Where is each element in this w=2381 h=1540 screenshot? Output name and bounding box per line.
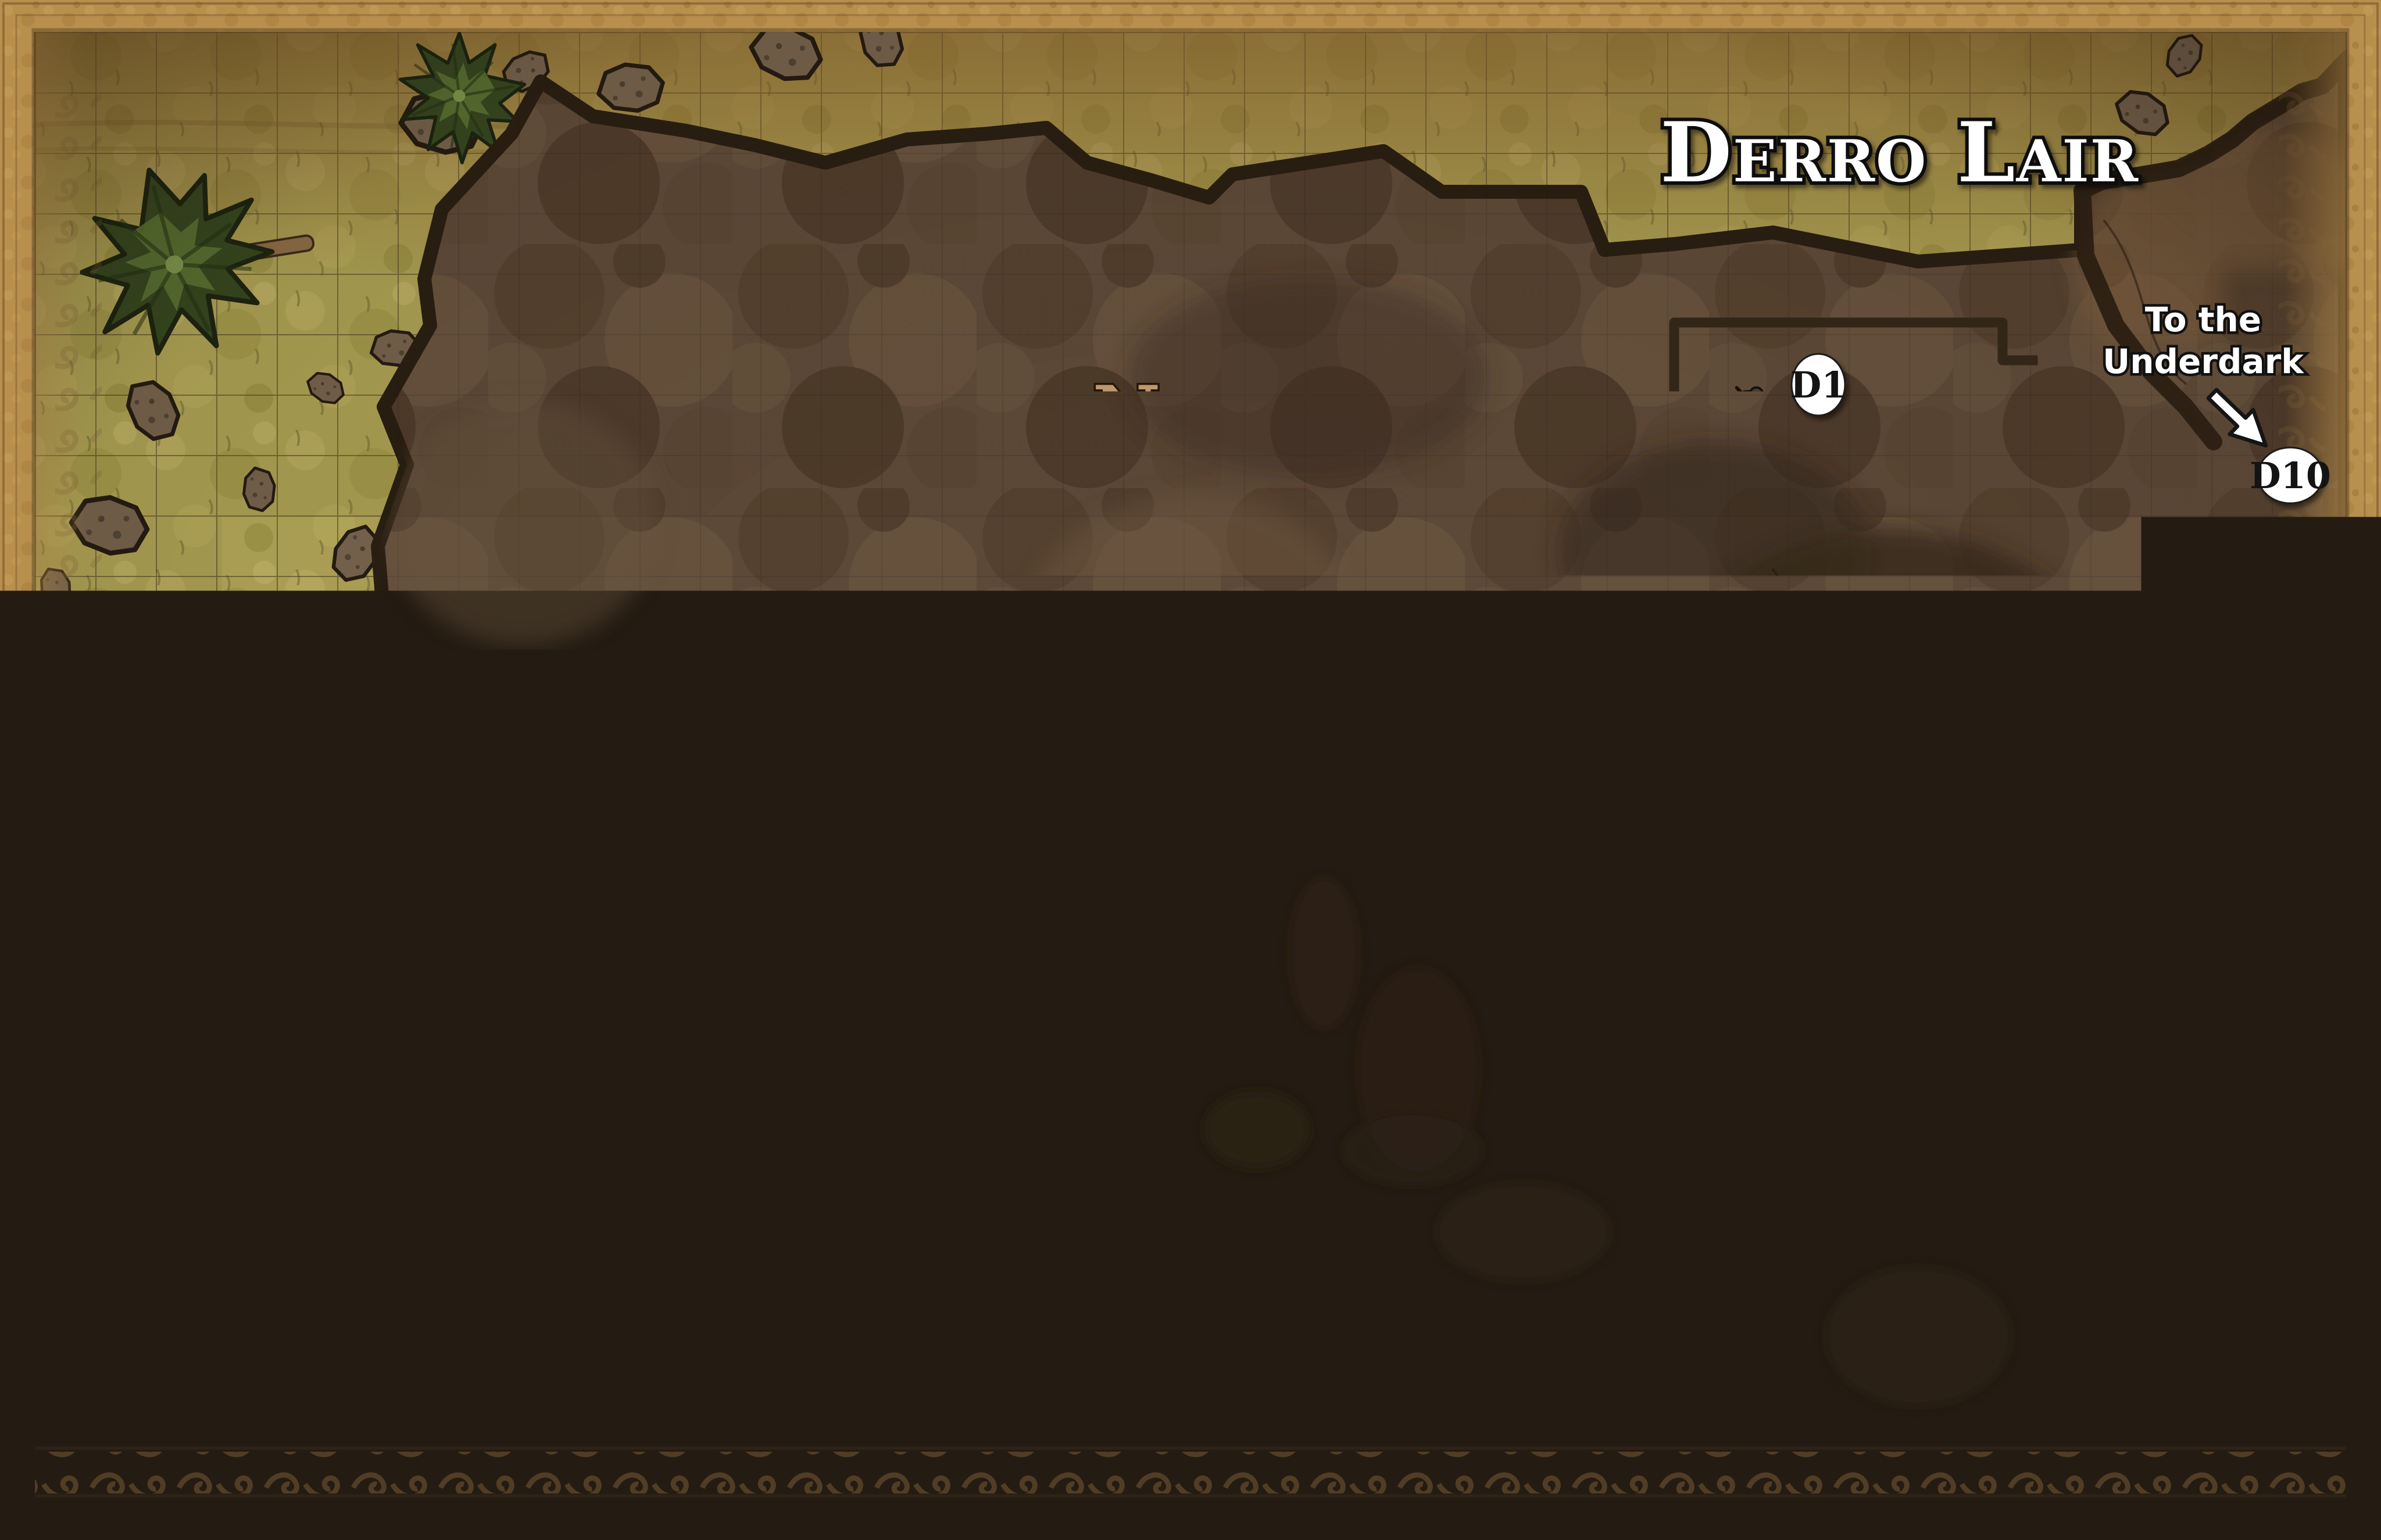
vignette	[34, 29, 2347, 1500]
legend-rubble-label: Loose Rubble	[387, 1298, 659, 1341]
svg-text:D8: D8	[1955, 1045, 2012, 1088]
room-marker-d9: D9	[1425, 578, 1482, 640]
svg-text:D2: D2	[706, 691, 762, 733]
underwater-tunnel-line1: Underwater	[509, 927, 734, 967]
room-marker-d3: D3	[870, 1277, 927, 1338]
svg-text:D6: D6	[1100, 886, 1156, 928]
legend-scale-label: = 10 Feet	[387, 1213, 581, 1256]
svg-text:D4: D4	[1393, 1260, 1450, 1303]
room-marker-d4: D4	[1393, 1251, 1450, 1312]
derro-lair-battle-map: N Derro Lair To the Underdark Underwater…	[0, 0, 2381, 1540]
room-marker-d10: D10	[2250, 447, 2331, 503]
map-title: Derro Lair	[1660, 105, 2139, 201]
svg-text:D3: D3	[870, 1287, 927, 1329]
svg-text:D7: D7	[1790, 1265, 1847, 1307]
underwater-tunnel-line2: Tunnel	[558, 980, 684, 1019]
room-marker-d6: D6	[1100, 876, 1156, 937]
underdark-line2: Underdark	[2103, 342, 2304, 381]
svg-text:D10: D10	[2250, 454, 2331, 497]
svg-text:D5: D5	[1490, 844, 1547, 886]
underdark-line1: To the	[2145, 300, 2261, 339]
room-marker-d8: D8	[1955, 1036, 2012, 1097]
svg-text:D9: D9	[1425, 588, 1482, 631]
map-canvas: N Derro Lair To the Underdark Underwater…	[0, 0, 2381, 1540]
room-marker-d1: D1	[1790, 354, 1847, 416]
room-marker-d7: D7	[1790, 1255, 1847, 1316]
room-marker-d2: D2	[706, 681, 762, 743]
room-marker-d5: D5	[1490, 834, 1547, 896]
marker-label: D1	[1790, 364, 1847, 406]
